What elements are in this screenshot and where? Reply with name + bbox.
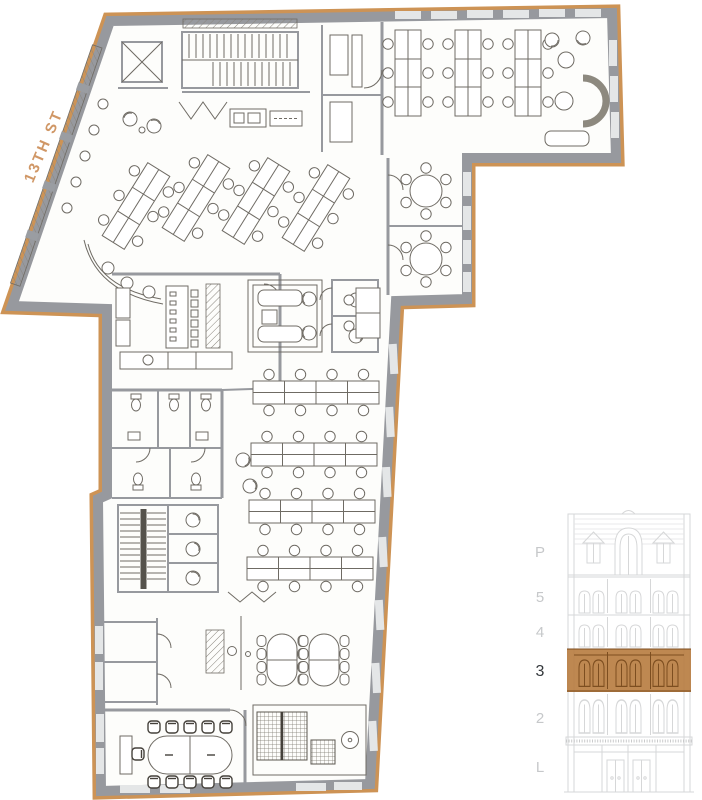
floor-3-highlight[interactable] (567, 649, 691, 692)
floor-plan: 13TH ST (10, 9, 619, 793)
page: 13TH ST (0, 0, 702, 800)
floor-label-3[interactable]: 3 (536, 663, 545, 680)
floor-label-2[interactable]: 2 (536, 710, 544, 727)
building-elevation: P 5 4 3 2 L (535, 511, 694, 793)
floor-selector: P 5 4 3 2 L (535, 544, 545, 776)
floor-label-5[interactable]: 5 (536, 589, 544, 606)
floor-label-4[interactable]: 4 (536, 624, 544, 641)
floor-label-l[interactable]: L (536, 759, 544, 776)
desk-area-northeast (383, 30, 553, 116)
elevation-facade (564, 511, 694, 793)
floor-plan-figure: 13TH ST (0, 0, 702, 800)
floor-label-p[interactable]: P (535, 544, 545, 561)
